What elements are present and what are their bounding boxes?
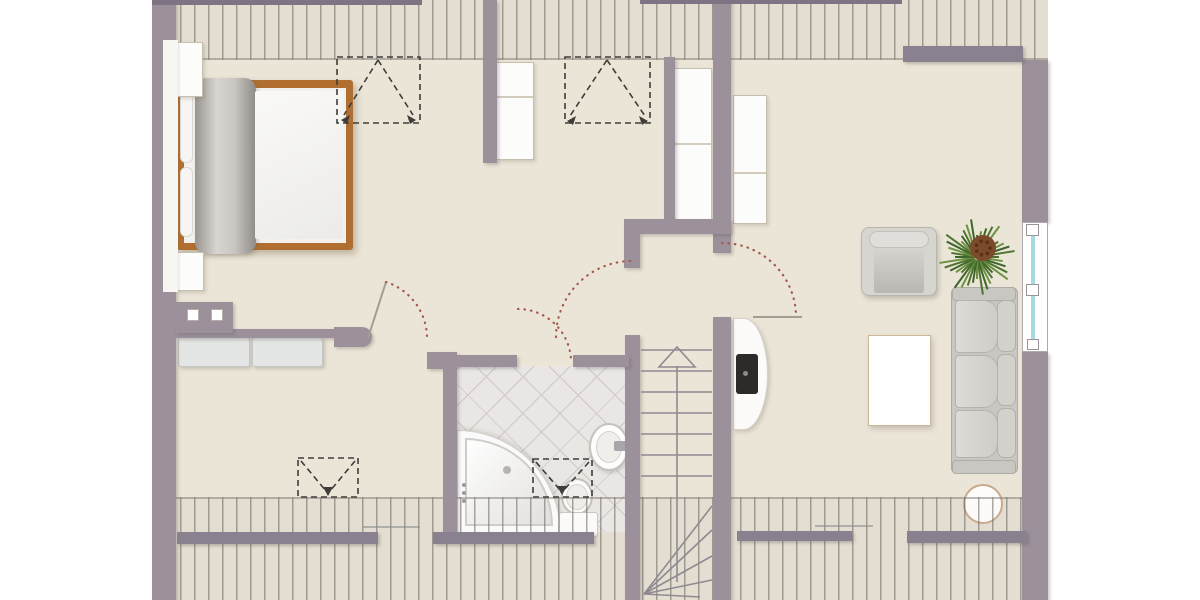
stair-wall-right-upper [713, 0, 731, 253]
bathtub-drain [503, 466, 511, 474]
roof-beam-top-right [903, 46, 1023, 62]
bench-cushion-right [252, 337, 323, 367]
stair-wall-left-upper [624, 233, 640, 268]
bench-cushion-left [178, 337, 250, 367]
roof-edge-top-left [152, 0, 422, 5]
divider-wall-mid [664, 57, 675, 225]
wardrobe-hall-left-shelf-line [675, 143, 711, 145]
bathroom-corner-nub [427, 352, 444, 369]
roof-edge-top-mid [640, 0, 902, 4]
roof-beam-bottom-2 [433, 532, 594, 544]
window-handle-top [1026, 224, 1039, 236]
divider-wall-top [483, 0, 497, 163]
sofa-back-cushion-3 [997, 408, 1016, 458]
bed-headboard-cushion-2 [180, 167, 193, 237]
sofa-seat-cushion-3 [955, 410, 998, 458]
stair-wall-left-lower [625, 335, 640, 600]
wall-niche-box-2 [211, 309, 223, 321]
wardrobe-hall-right [733, 95, 767, 224]
stair-wall-right-lower [713, 317, 731, 600]
armchair-seat [874, 248, 924, 293]
wardrobe-top-middle-shelf-line [497, 96, 533, 98]
bedroom-wall-lining [163, 40, 178, 292]
roof-band-bottom-hatch [152, 497, 1048, 600]
bed-blanket-roll [195, 78, 256, 254]
roof-beam-bottom-3 [737, 531, 852, 541]
roof-beam-bottom-1 [177, 532, 378, 544]
bathroom-north-wall-left [455, 355, 517, 367]
bed-headboard-cushion-1 [180, 92, 193, 163]
window-handle-mid [1026, 284, 1039, 296]
bedside-cabinet-top [175, 42, 203, 97]
stair-top-wall [624, 219, 731, 234]
bedroom-wall-protrusion [176, 302, 233, 333]
outer-wall-right-upper [1022, 60, 1048, 222]
sofa-seat-cushion-2 [955, 355, 998, 408]
wardrobe-hall-right-shelf-line [734, 172, 766, 174]
wall-niche-box-1 [187, 309, 199, 321]
wardrobe-top-middle [496, 62, 534, 160]
knee-wall-line-left [363, 526, 420, 528]
sofa-armrest-bottom [952, 460, 1016, 474]
floor-plan [0, 0, 1200, 600]
bathroom-north-wall-right [573, 355, 629, 367]
armchair-back-roll [869, 231, 929, 248]
sofa-seat-cushion-1 [955, 300, 998, 353]
sofa-armrest-top [952, 287, 1016, 301]
bedside-cabinet-bottom [175, 252, 204, 291]
knee-wall-line-right [815, 525, 873, 527]
bedroom-door-jamb [334, 327, 372, 347]
bathtub-jet-2 [462, 491, 466, 495]
sofa-back-cushion-2 [997, 354, 1016, 406]
coffee-table [868, 335, 931, 426]
bathroom-west-wall [443, 352, 457, 538]
outer-wall-right-lower [1022, 352, 1048, 600]
tv-power-dot [743, 371, 748, 376]
bed-duvet [255, 91, 343, 239]
roof-beam-bottom-4 [907, 531, 1027, 543]
bathtub-jet-1 [462, 483, 466, 487]
window-handle-bottom [1027, 339, 1039, 350]
sofa-back-cushion-1 [997, 300, 1016, 352]
